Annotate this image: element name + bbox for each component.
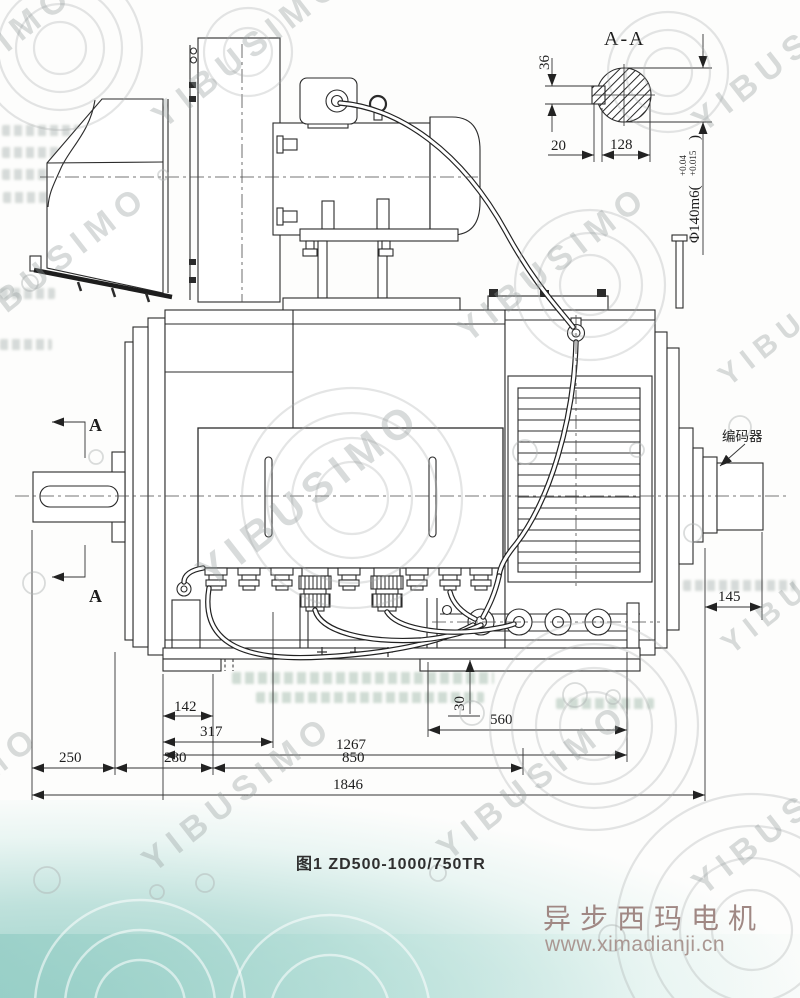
watermark-texts: YIBUSIMO YIBUSIMO YIBUSIMO YIBUSIMO YIBU… [0,0,800,903]
watermark-text: YIBUSIMO [430,695,636,868]
brand-url: www.ximadianji.cn [545,933,725,957]
watermark-layer: YIBUSIMO YIBUSIMO YIBUSIMO YIBUSIMO YIBU… [0,0,800,998]
brand-text: 异步西玛电机 [543,897,765,937]
watermark-text: YIBUSIMO [712,236,800,393]
watermark-text: YIBUSIMO [715,504,800,661]
watermark-text: YIBUSIMO [188,391,431,595]
watermark-text: YIBUSIMO [145,0,351,136]
watermark-text: YIBUSIMO [685,0,800,140]
white-ripples [35,900,430,998]
watermark-text: YIBUSIMO [0,717,48,890]
watermark-text: YIBUSIMO [0,177,156,350]
figure-caption: 图1 ZD500-1000/750TR [296,850,486,874]
scanned-drawing-page: A-A 36 20 128 Φ140m6( +0.04 +0.015 ) A A… [0,0,800,998]
watermark-text: YIBUSIMO [685,730,800,903]
ripple-circles [0,0,800,998]
watermark-text: YIBUSIMO [0,0,81,148]
